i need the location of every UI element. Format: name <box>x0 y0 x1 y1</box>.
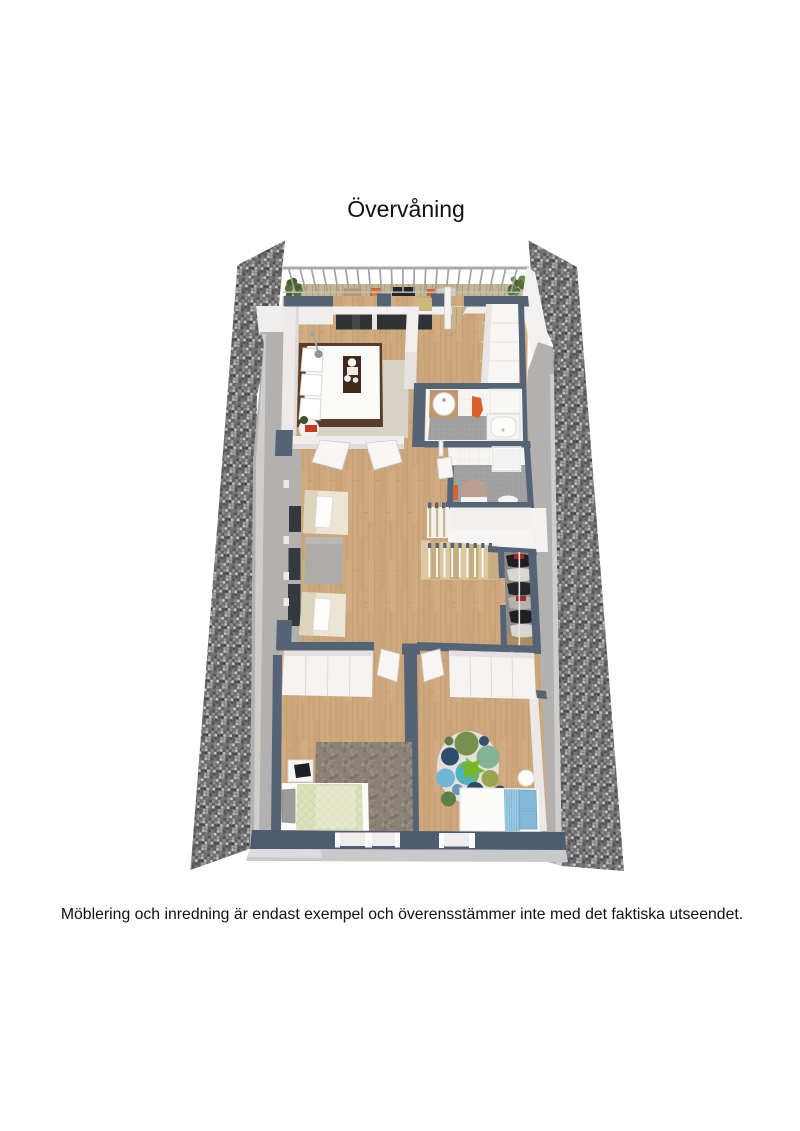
svg-text:Möblering och inredning är end: Möblering och inredning är endast exempe… <box>61 906 743 923</box>
svg-text:Övervåning: Övervåning <box>347 196 465 222</box>
